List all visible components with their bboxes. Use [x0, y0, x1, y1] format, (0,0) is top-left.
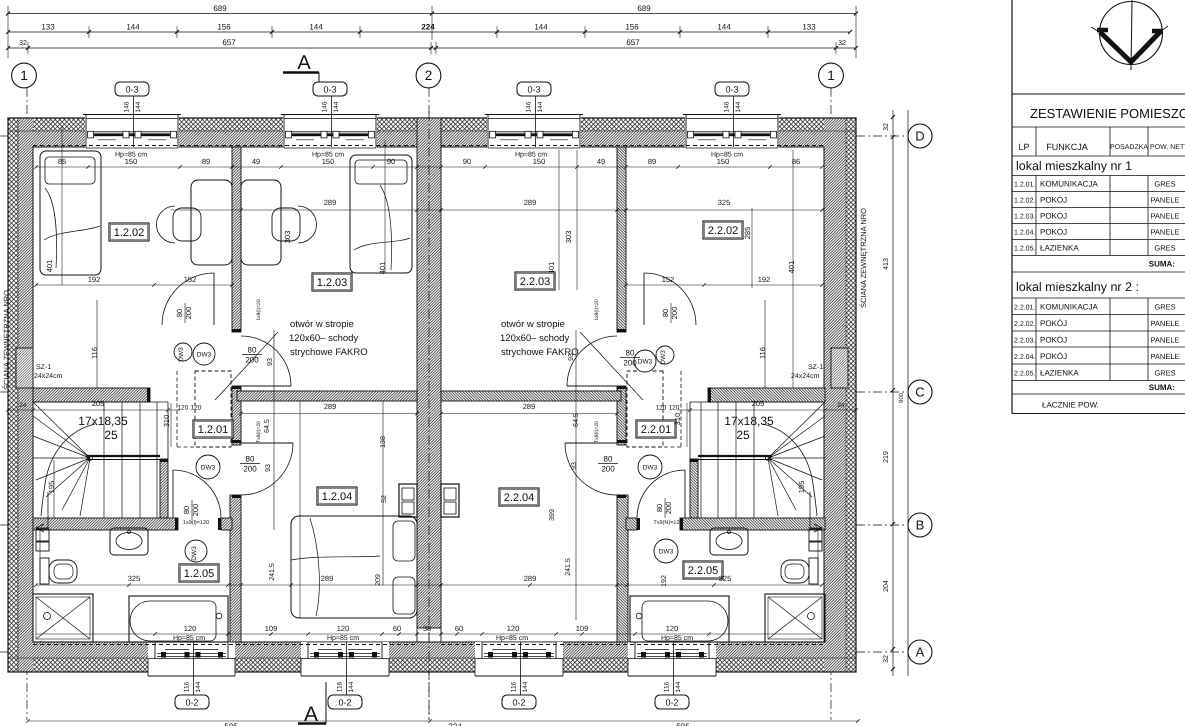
- svg-text:2.2.01: 2.2.01: [641, 424, 672, 436]
- svg-text:595: 595: [224, 722, 238, 726]
- svg-text:146: 146: [526, 101, 533, 112]
- svg-text:116: 116: [664, 681, 671, 692]
- svg-text:0-3: 0-3: [527, 85, 540, 95]
- svg-text:120: 120: [178, 405, 189, 412]
- svg-text:A: A: [297, 52, 311, 74]
- svg-text:ZESTAWIENIE POMIESZCZEŃ: ZESTAWIENIE POMIESZCZEŃ: [1030, 106, 1185, 121]
- svg-text:144: 144: [717, 23, 731, 32]
- svg-text:120: 120: [337, 624, 350, 633]
- svg-text:146: 146: [124, 101, 131, 112]
- svg-text:325: 325: [719, 574, 732, 583]
- svg-text:32: 32: [883, 123, 890, 131]
- svg-text:DW3: DW3: [659, 549, 674, 556]
- svg-text:200: 200: [245, 356, 259, 365]
- svg-text:80: 80: [626, 349, 635, 358]
- svg-text:192: 192: [661, 575, 668, 587]
- svg-text:93: 93: [265, 464, 272, 472]
- svg-text:17x18,35: 17x18,35: [724, 414, 774, 428]
- svg-text:ŁAZIENKA: ŁAZIENKA: [1040, 244, 1079, 253]
- svg-text:64.5: 64.5: [573, 413, 580, 427]
- svg-text:DW3: DW3: [201, 465, 216, 472]
- svg-text:241.5: 241.5: [269, 563, 276, 581]
- svg-text:657: 657: [626, 38, 640, 47]
- svg-text:224: 224: [448, 722, 462, 726]
- svg-text:24x24cm: 24x24cm: [34, 373, 63, 380]
- svg-text:PANELE: PANELE: [1150, 336, 1179, 345]
- svg-text:303: 303: [564, 231, 573, 244]
- svg-text:120: 120: [507, 624, 520, 633]
- svg-text:144: 144: [195, 681, 202, 692]
- svg-text:0-3: 0-3: [125, 85, 138, 95]
- svg-text:1x9(I)=20: 1x9(I)=20: [594, 299, 600, 320]
- svg-text:93: 93: [267, 358, 274, 366]
- svg-text:0-2: 0-2: [338, 698, 351, 708]
- svg-text:C: C: [915, 385, 924, 400]
- svg-text:POKÓJ: POKÓJ: [1040, 196, 1067, 205]
- svg-text:657: 657: [222, 38, 236, 47]
- svg-text:241.5: 241.5: [565, 558, 572, 576]
- svg-text:90: 90: [387, 157, 395, 166]
- svg-text:ŁAZIENKA: ŁAZIENKA: [1040, 369, 1079, 378]
- svg-text:SZ-1: SZ-1: [808, 364, 823, 371]
- svg-text:PANELE: PANELE: [1150, 228, 1179, 237]
- svg-text:900: 900: [898, 392, 905, 403]
- svg-text:POKÓJ: POKÓJ: [1040, 336, 1067, 345]
- svg-text:200: 200: [601, 465, 615, 474]
- svg-text:2.2.04: 2.2.04: [504, 492, 535, 504]
- svg-text:2: 2: [425, 68, 433, 83]
- svg-text:PANELE: PANELE: [1150, 352, 1179, 361]
- svg-text:120x60– schody: 120x60– schody: [289, 333, 358, 344]
- svg-text:204: 204: [883, 580, 890, 592]
- svg-text:289: 289: [324, 198, 337, 207]
- svg-text:strychowe FAKRO: strychowe FAKRO: [290, 347, 368, 358]
- svg-text:285: 285: [743, 227, 752, 240]
- svg-text:289: 289: [324, 402, 337, 411]
- svg-text:DW3: DW3: [660, 350, 667, 365]
- svg-text:310: 310: [673, 413, 682, 426]
- svg-text:Hp=85 cm: Hp=85 cm: [115, 152, 147, 159]
- svg-text:POKÓJ: POKÓJ: [1040, 212, 1067, 221]
- svg-text:DW3: DW3: [197, 352, 212, 359]
- svg-text:303: 303: [283, 231, 292, 244]
- svg-text:A: A: [916, 645, 925, 660]
- svg-text:Hp=85 cm: Hp=85 cm: [173, 635, 205, 642]
- svg-text:PANELE: PANELE: [1150, 196, 1179, 205]
- svg-text:GRES: GRES: [1154, 180, 1175, 189]
- svg-text:109: 109: [265, 624, 278, 633]
- svg-text:192: 192: [758, 275, 771, 284]
- svg-text:116: 116: [758, 347, 767, 359]
- svg-text:B: B: [916, 518, 925, 533]
- svg-text:289: 289: [524, 574, 537, 583]
- svg-text:lokal mieszkalny nr 2 :: lokal mieszkalny nr 2 :: [1016, 280, 1139, 294]
- svg-text:310: 310: [162, 415, 171, 428]
- svg-text:Hp=85 cm: Hp=85 cm: [327, 635, 359, 642]
- svg-text:116: 116: [337, 681, 344, 692]
- svg-text:200: 200: [664, 502, 673, 515]
- svg-text:325: 325: [718, 198, 731, 207]
- svg-text:otwór w stropie: otwór w stropie: [290, 319, 354, 330]
- svg-text:25: 25: [104, 428, 118, 442]
- svg-text:KOMUNIKACJA: KOMUNIKACJA: [1040, 180, 1098, 189]
- svg-text:1: 1: [827, 68, 835, 83]
- svg-text:strychowe FAKRO: strychowe FAKRO: [501, 347, 579, 358]
- svg-text:GRES: GRES: [1154, 303, 1175, 312]
- svg-text:D: D: [915, 129, 924, 144]
- svg-text:144: 144: [126, 23, 140, 32]
- svg-text:52: 52: [381, 495, 388, 503]
- svg-text:80: 80: [655, 504, 664, 512]
- svg-text:120: 120: [191, 405, 202, 412]
- svg-text:DW3: DW3: [643, 465, 658, 472]
- svg-text:1.2.03: 1.2.03: [317, 277, 348, 289]
- svg-text:0-2: 0-2: [665, 698, 678, 708]
- svg-text:116: 116: [511, 681, 518, 692]
- svg-text:0-3: 0-3: [323, 85, 336, 95]
- svg-text:2.2.02: 2.2.02: [708, 225, 739, 237]
- svg-text:ŁACZNIE POW.: ŁACZNIE POW.: [1042, 401, 1099, 410]
- svg-text:2.2.04.: 2.2.04.: [1014, 354, 1035, 361]
- svg-text:64.5: 64.5: [264, 419, 271, 433]
- svg-text:80: 80: [246, 455, 255, 464]
- svg-text:Hp=85 cm: Hp=85 cm: [661, 635, 693, 642]
- svg-text:120: 120: [669, 405, 680, 412]
- svg-text:Hp=85 cm: Hp=85 cm: [515, 152, 547, 159]
- svg-text:80: 80: [175, 309, 184, 317]
- svg-text:93: 93: [568, 353, 575, 361]
- svg-text:1.2.01: 1.2.01: [198, 424, 229, 436]
- svg-text:289: 289: [523, 402, 536, 411]
- svg-text:2.2.05: 2.2.05: [688, 565, 719, 577]
- svg-text:90: 90: [463, 157, 471, 166]
- svg-text:DW3: DW3: [178, 347, 185, 362]
- svg-text:25: 25: [736, 428, 750, 442]
- svg-text:FUNKCJA: FUNKCJA: [1046, 142, 1088, 152]
- svg-text:200: 200: [191, 504, 200, 517]
- svg-text:195: 195: [797, 481, 806, 494]
- svg-text:144: 144: [309, 23, 323, 32]
- svg-text:146: 146: [322, 101, 329, 112]
- svg-text:595: 595: [676, 722, 690, 726]
- svg-text:413: 413: [883, 258, 890, 270]
- svg-text:0-3: 0-3: [725, 85, 738, 95]
- svg-text:224: 224: [421, 23, 435, 32]
- svg-text:80: 80: [182, 506, 191, 514]
- svg-text:80: 80: [604, 455, 613, 464]
- svg-text:PANELE: PANELE: [1150, 319, 1179, 328]
- svg-text:0-2: 0-2: [512, 698, 525, 708]
- svg-text:GRES: GRES: [1154, 244, 1175, 253]
- svg-text:49: 49: [597, 157, 605, 166]
- svg-text:PANELE: PANELE: [1150, 212, 1179, 221]
- svg-text:DW3: DW3: [191, 546, 198, 561]
- svg-text:200: 200: [243, 465, 257, 474]
- svg-text:289: 289: [321, 574, 334, 583]
- svg-text:60: 60: [455, 624, 463, 633]
- svg-text:1.2.02: 1.2.02: [114, 227, 145, 239]
- svg-text:325: 325: [128, 574, 141, 583]
- svg-text:2.2.02.: 2.2.02.: [1014, 321, 1035, 328]
- svg-text:144: 144: [537, 101, 544, 112]
- svg-text:POKÓJ: POKÓJ: [1040, 319, 1067, 328]
- svg-text:138: 138: [380, 436, 387, 448]
- svg-text:156: 156: [217, 23, 231, 32]
- svg-text:LP: LP: [1018, 142, 1029, 152]
- svg-text:1: 1: [20, 68, 28, 83]
- svg-text:1.2.04: 1.2.04: [322, 491, 353, 503]
- svg-text:2.2.03: 2.2.03: [520, 276, 551, 288]
- svg-text:SUMA:: SUMA:: [1149, 260, 1175, 269]
- svg-text:POW, NETTO: POW, NETTO: [1150, 144, 1185, 151]
- svg-text:133: 133: [802, 23, 816, 32]
- svg-text:289: 289: [524, 198, 537, 207]
- svg-text:80: 80: [248, 346, 257, 355]
- svg-text:Hp=85 cm: Hp=85 cm: [312, 152, 344, 159]
- svg-text:219: 219: [883, 451, 890, 463]
- svg-text:144: 144: [534, 23, 548, 32]
- svg-text:SZ-1: SZ-1: [36, 364, 51, 371]
- svg-text:17x18,35: 17x18,35: [78, 414, 128, 428]
- svg-text:1.2.05.: 1.2.05.: [1014, 246, 1035, 253]
- svg-text:399: 399: [549, 509, 556, 521]
- svg-text:1x9(l)=120: 1x9(l)=120: [183, 520, 209, 526]
- svg-text:192: 192: [88, 275, 101, 284]
- svg-text:205: 205: [92, 399, 105, 408]
- svg-text:1x9(I)=20: 1x9(I)=20: [256, 299, 262, 320]
- svg-text:0-2: 0-2: [185, 698, 198, 708]
- svg-text:24: 24: [19, 402, 27, 409]
- svg-text:133: 133: [41, 23, 55, 32]
- svg-text:689: 689: [213, 4, 227, 13]
- svg-text:120: 120: [184, 624, 197, 633]
- svg-text:32: 32: [19, 40, 27, 47]
- svg-text:89: 89: [648, 157, 656, 166]
- svg-text:POKÓJ: POKÓJ: [1040, 352, 1067, 361]
- svg-text:116: 116: [184, 681, 191, 692]
- svg-text:200: 200: [184, 307, 193, 320]
- svg-text:SUMA:: SUMA:: [1149, 383, 1175, 392]
- svg-text:49: 49: [252, 157, 260, 166]
- svg-text:Tx9(N)=120: Tx9(N)=120: [653, 520, 682, 526]
- svg-text:Hp=85 cm: Hp=85 cm: [711, 152, 743, 159]
- svg-text:200: 200: [623, 359, 637, 368]
- svg-text:120: 120: [666, 624, 679, 633]
- svg-text:DW3: DW3: [638, 359, 653, 366]
- svg-text:401: 401: [378, 262, 387, 275]
- svg-text:144: 144: [522, 681, 529, 692]
- svg-text:32: 32: [883, 655, 890, 663]
- svg-text:1.2.04.: 1.2.04.: [1014, 230, 1035, 237]
- svg-text:2.2.05.: 2.2.05.: [1014, 371, 1035, 378]
- svg-text:89: 89: [202, 157, 210, 166]
- svg-text:401: 401: [787, 261, 796, 274]
- svg-text:24: 24: [837, 402, 845, 409]
- svg-text:144: 144: [675, 681, 682, 692]
- svg-text:80: 80: [661, 309, 670, 317]
- svg-text:lokal mieszkalny nr 1: lokal mieszkalny nr 1: [1016, 159, 1132, 173]
- svg-text:ŚCIANA ZEWNĘTRZNA NRO: ŚCIANA ZEWNĘTRZNA NRO: [859, 208, 868, 308]
- svg-text:2.2.03.: 2.2.03.: [1014, 338, 1035, 345]
- svg-text:Tx9(I)=20: Tx9(I)=20: [256, 421, 262, 443]
- svg-text:86: 86: [792, 157, 800, 166]
- svg-text:GRES: GRES: [1154, 369, 1175, 378]
- svg-text:1.2.01.: 1.2.01.: [1014, 182, 1035, 189]
- svg-text:144: 144: [735, 101, 742, 112]
- svg-text:24x24cm: 24x24cm: [791, 373, 820, 380]
- svg-text:109: 109: [576, 624, 589, 633]
- svg-text:POSADZKA: POSADZKA: [1110, 144, 1148, 151]
- svg-text:152: 152: [662, 275, 675, 284]
- svg-text:1.2.05: 1.2.05: [184, 568, 215, 580]
- svg-text:120x60– schody: 120x60– schody: [500, 333, 569, 344]
- svg-text:KOMUNIKACJA: KOMUNIKACJA: [1040, 303, 1098, 312]
- svg-text:2.2.01.: 2.2.01.: [1014, 305, 1035, 312]
- svg-text:195: 195: [47, 481, 56, 494]
- svg-text:200: 200: [670, 307, 679, 320]
- svg-text:Hp=85 cm: Hp=85 cm: [496, 635, 528, 642]
- svg-text:38: 38: [423, 624, 431, 633]
- svg-text:144: 144: [135, 101, 142, 112]
- svg-text:93: 93: [571, 462, 578, 470]
- svg-text:Tx9(I)=20: Tx9(I)=20: [594, 421, 600, 443]
- svg-text:otwór w stropie: otwór w stropie: [501, 319, 565, 330]
- svg-text:689: 689: [637, 4, 651, 13]
- svg-text:32: 32: [838, 40, 846, 47]
- svg-text:POKÓJ: POKÓJ: [1040, 228, 1067, 237]
- svg-text:116: 116: [90, 347, 99, 359]
- svg-text:152: 152: [184, 275, 197, 284]
- svg-text:120: 120: [656, 405, 667, 412]
- svg-text:1.2.03.: 1.2.03.: [1014, 214, 1035, 221]
- svg-text:209: 209: [375, 574, 382, 586]
- svg-text:401: 401: [45, 260, 54, 273]
- svg-text:1.2.02.: 1.2.02.: [1014, 198, 1035, 205]
- svg-text:146: 146: [724, 101, 731, 112]
- svg-text:156: 156: [625, 23, 639, 32]
- svg-text:144: 144: [333, 101, 340, 112]
- svg-text:205: 205: [752, 399, 765, 408]
- svg-text:60: 60: [393, 624, 401, 633]
- svg-text:85: 85: [58, 157, 66, 166]
- svg-text:144: 144: [348, 681, 355, 692]
